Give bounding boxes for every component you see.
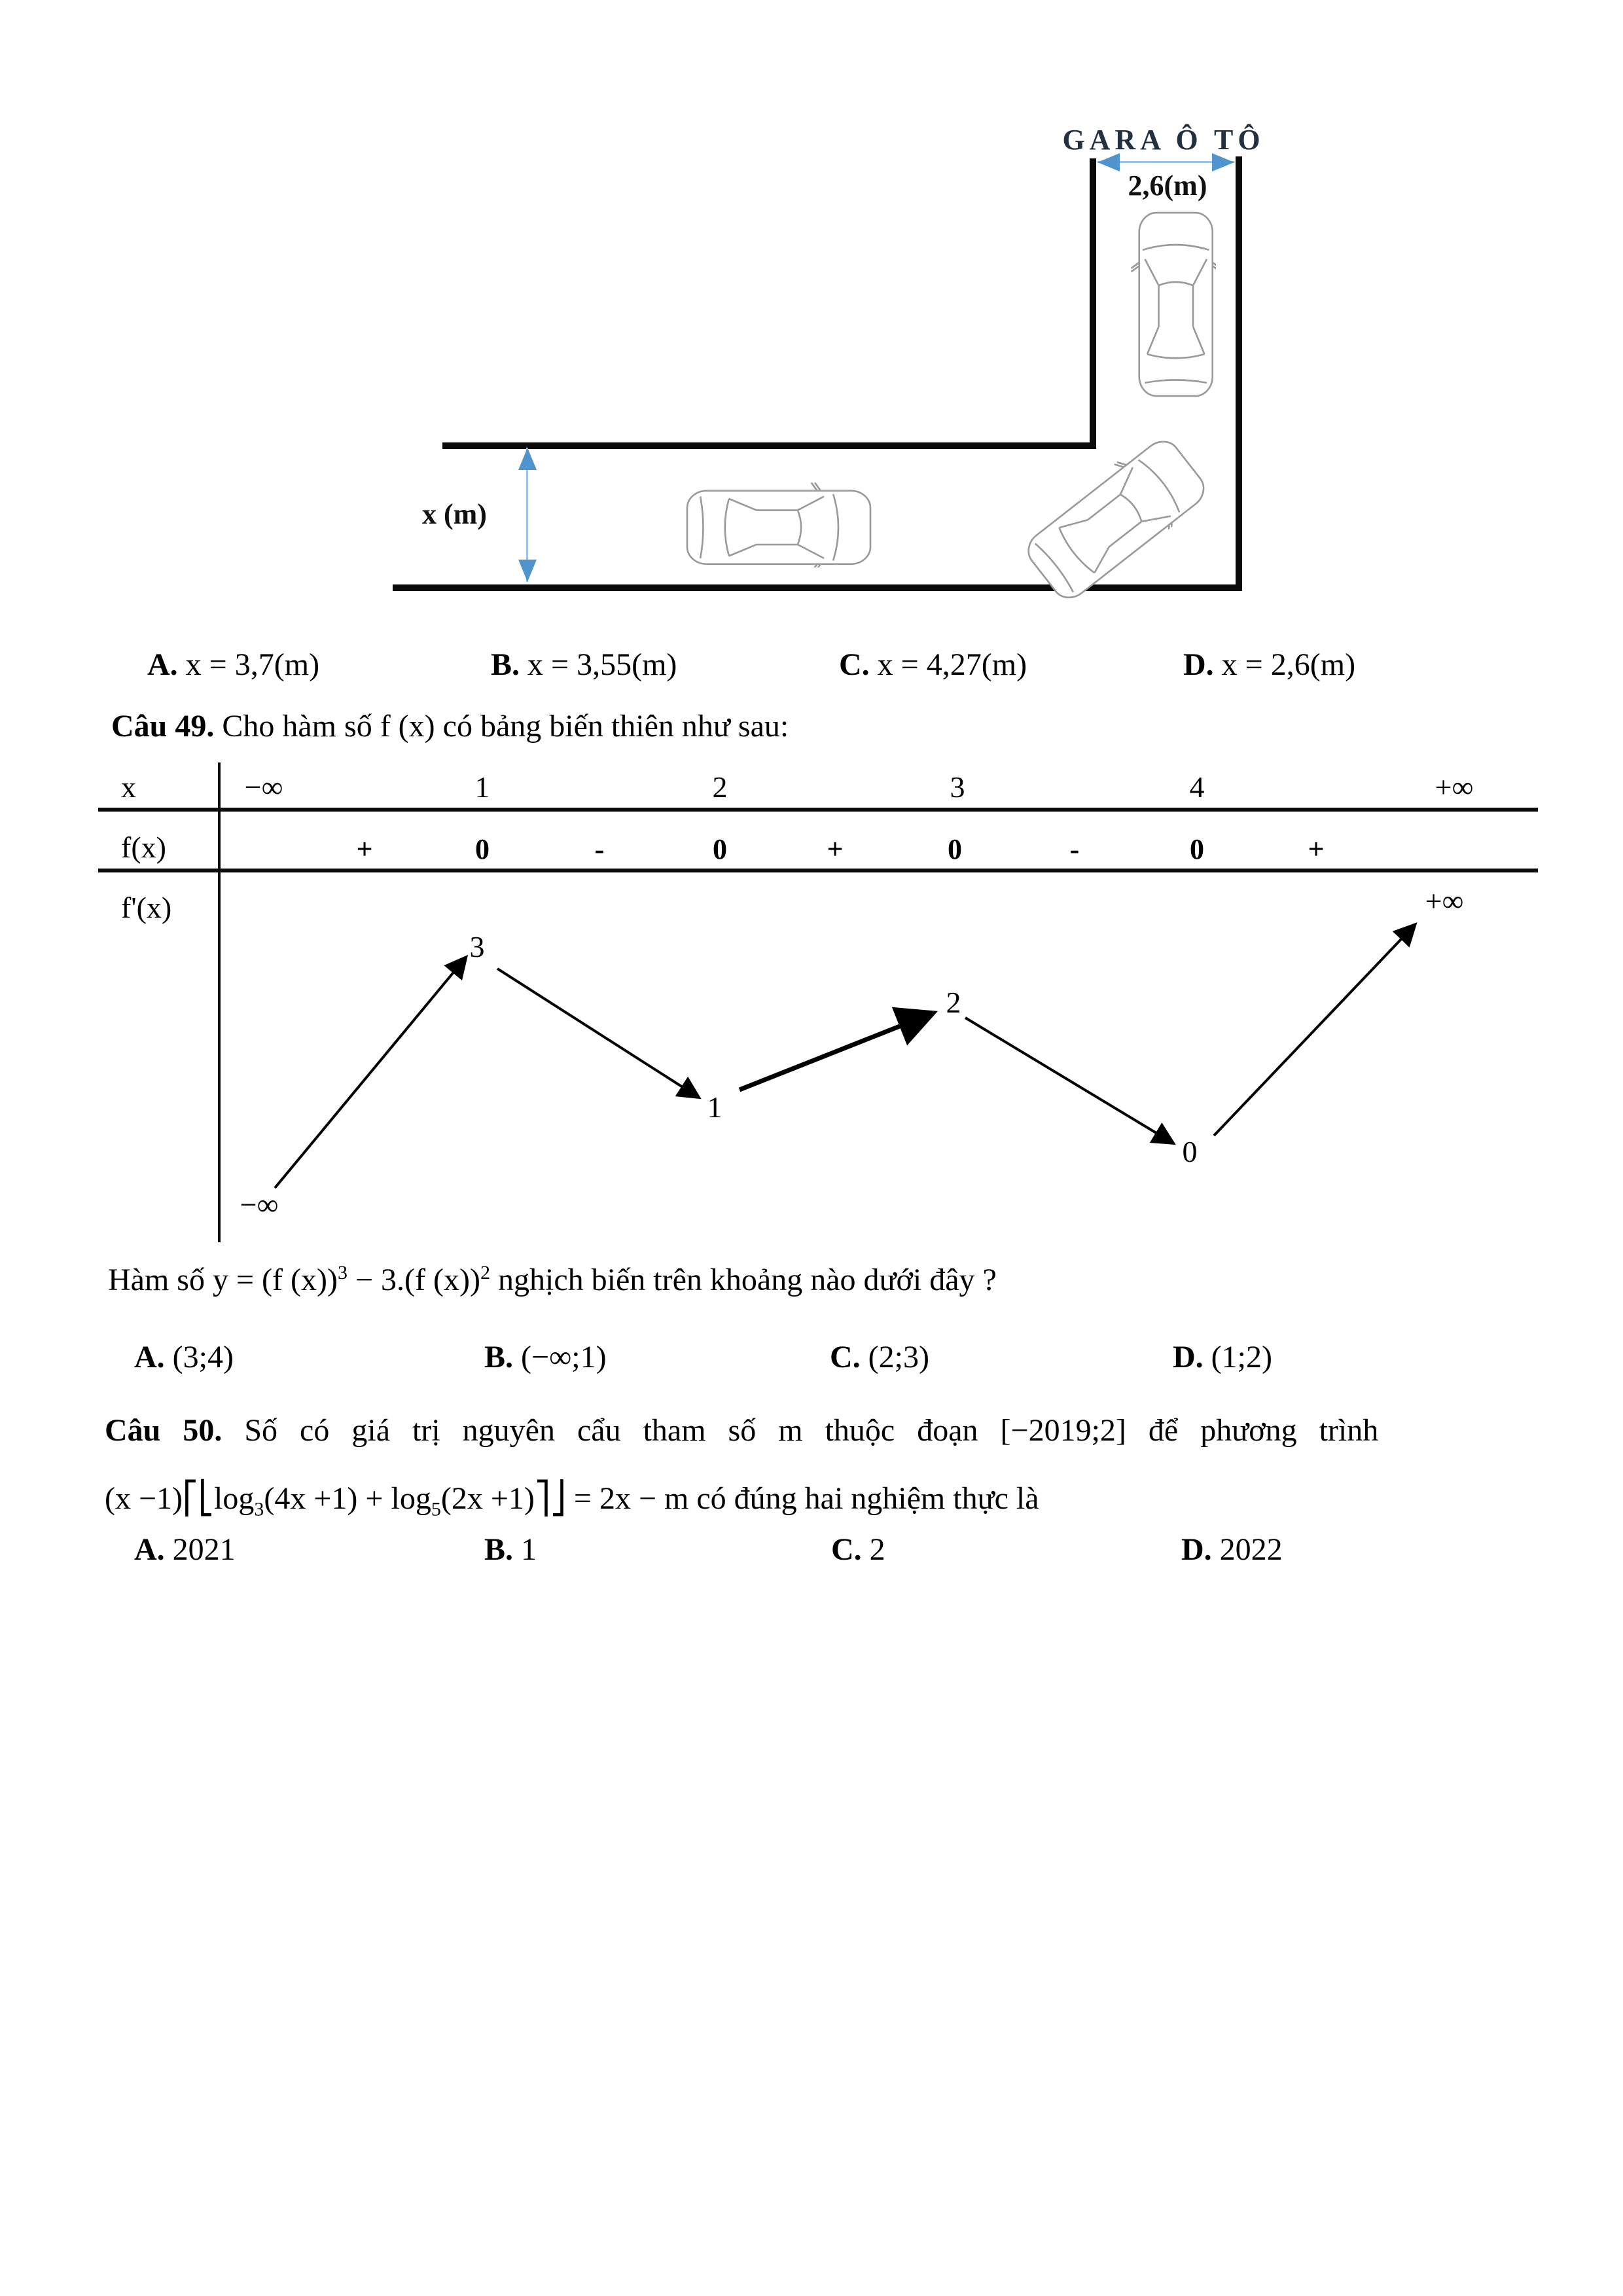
exponent-3: 3: [338, 1262, 348, 1283]
q50-number: Câu 50.: [105, 1413, 222, 1448]
row-label-fx: f(x): [121, 830, 166, 865]
q49-question-suffix: nghịch biến trên khoảng nào dưới đây ?: [490, 1263, 997, 1297]
log-base-3: 3: [254, 1499, 264, 1520]
option-letter: B.: [484, 1340, 513, 1374]
option-text: 1: [521, 1532, 537, 1567]
x-value: 4: [1190, 770, 1205, 804]
car-in-garage-icon: [1124, 200, 1216, 409]
option-letter: A.: [134, 1532, 165, 1567]
curve-value-valley1: 1: [707, 1090, 722, 1124]
q50-option-c[interactable]: C. 2: [831, 1532, 885, 1568]
x-value: 2: [713, 770, 728, 804]
option-text: 2021: [173, 1532, 236, 1567]
garage-title: GARA Ô TÔ: [1062, 123, 1264, 156]
option-text: x = 2,6(m): [1222, 647, 1355, 682]
option-text: 2: [870, 1532, 885, 1567]
option-letter: C.: [831, 1532, 862, 1567]
option-letter: B.: [491, 647, 520, 682]
x-value: 3: [950, 770, 965, 804]
corridor-inner-wall: [442, 442, 1096, 449]
arrowhead-down-icon: [518, 560, 537, 582]
sign-value: 0: [475, 833, 490, 866]
sign-value: -: [595, 833, 605, 866]
option-text: (3;4): [173, 1340, 234, 1374]
sign-value: 0: [948, 833, 962, 866]
arrowhead-right-icon: [1212, 153, 1234, 171]
q49-option-d[interactable]: D. (1;2): [1173, 1339, 1272, 1375]
x-value: 1: [475, 770, 490, 804]
sign-value: +: [827, 833, 843, 866]
garage-width-label: 2,6(m): [1128, 169, 1207, 202]
option-letter: D.: [1181, 1532, 1212, 1567]
q48-option-c[interactable]: C. x = 4,27(m): [839, 647, 1027, 683]
corridor-width-dimension: [526, 448, 528, 582]
variation-arrows: [196, 884, 1538, 1244]
q49-number: Câu 49.: [111, 709, 214, 744]
q49-option-c[interactable]: C. (2;3): [830, 1339, 929, 1375]
q48-option-a[interactable]: A. x = 3,7(m): [147, 647, 319, 683]
option-text: x = 4,27(m): [878, 647, 1027, 682]
option-text: x = 3,7(m): [186, 647, 319, 682]
q50-header: Câu 50. Số có giá trị nguyên cẩu tham số…: [105, 1412, 1535, 1448]
option-letter: A.: [147, 647, 178, 682]
option-letter: D.: [1173, 1340, 1204, 1374]
curve-value-start: −∞: [240, 1187, 279, 1222]
q49-question-prefix: Hàm số: [108, 1263, 213, 1297]
table-rule-1: [98, 808, 1538, 812]
curve-value-peak2: 2: [946, 985, 961, 1020]
q50-eq-part2: (4x +1) + log: [264, 1481, 431, 1516]
q50-eq-tail: có đúng hai nghiệm thực là: [688, 1481, 1039, 1516]
q50-eq-part3: (2x +1)⎤⎦ = 2x − m: [441, 1481, 689, 1516]
option-text: (1;2): [1211, 1340, 1272, 1374]
option-letter: A.: [134, 1340, 165, 1374]
sign-value: +: [356, 833, 372, 866]
q48-option-d[interactable]: D. x = 2,6(m): [1183, 647, 1355, 683]
option-text: (2;3): [868, 1340, 929, 1374]
q50-option-d[interactable]: D. 2022: [1181, 1532, 1283, 1568]
q49-header: Câu 49. Cho hàm số f (x) có bảng biến th…: [111, 708, 789, 744]
x-value: +∞: [1435, 770, 1474, 804]
q49-formula-part1: y = (f (x)): [213, 1263, 338, 1297]
garage-right-wall: [1236, 156, 1242, 591]
row-label-x: x: [121, 770, 136, 804]
sign-value: +: [1308, 833, 1324, 866]
option-text: 2022: [1220, 1532, 1283, 1567]
garage-width-dimension: [1097, 161, 1234, 163]
table-rule-2: [98, 869, 1538, 872]
option-letter: B.: [484, 1532, 513, 1567]
corridor-width-label: x (m): [422, 497, 487, 531]
sign-value: -: [1070, 833, 1080, 866]
option-text: x = 3,55(m): [527, 647, 677, 682]
corridor-bottom-wall: [393, 584, 1242, 591]
q50-text-1: Số có giá trị nguyên cẩu tham số m thuộc…: [244, 1413, 978, 1448]
q49-intro: Cho hàm số f (x) có bảng biến thiên như …: [214, 709, 789, 744]
car-in-corridor-icon: [671, 476, 887, 567]
option-letter: D.: [1183, 647, 1214, 682]
x-value: −∞: [245, 770, 283, 804]
q49-question: Hàm số y = (f (x))3 − 3.(f (x))2 nghịch …: [108, 1262, 997, 1298]
log-base-5: 5: [431, 1499, 441, 1520]
row-label-fpx: f'(x): [121, 890, 171, 925]
q48-option-b[interactable]: B. x = 3,55(m): [491, 647, 677, 683]
q49-option-b[interactable]: B. (−∞;1): [484, 1339, 607, 1375]
option-letter: C.: [839, 647, 870, 682]
q50-text-2: để phương trình: [1149, 1413, 1378, 1448]
q50-option-a[interactable]: A. 2021: [134, 1532, 236, 1568]
q50-interval: [−2019;2]: [1001, 1413, 1126, 1448]
exponent-2: 2: [480, 1262, 490, 1283]
arrowhead-left-icon: [1097, 153, 1120, 171]
exam-page: GARA Ô TÔ 2,6(m) x (m) A. x = 3,7(m) B. …: [0, 0, 1623, 2296]
q49-formula-part2: − 3.(f (x)): [348, 1263, 480, 1297]
curve-value-peak1: 3: [470, 929, 485, 964]
curve-value-end: +∞: [1425, 884, 1464, 918]
option-letter: C.: [830, 1340, 861, 1374]
option-text: (−∞;1): [521, 1340, 607, 1374]
garage-left-wall: [1090, 158, 1096, 449]
sign-value: 0: [713, 833, 727, 866]
q50-eq-part1: (x −1)⎡⎣log: [105, 1481, 254, 1516]
q50-equation: (x −1)⎡⎣log3(4x +1) + log5(2x +1)⎤⎦ = 2x…: [105, 1480, 1039, 1516]
q50-option-b[interactable]: B. 1: [484, 1532, 537, 1568]
arrowhead-up-icon: [518, 448, 537, 470]
sign-value: 0: [1190, 833, 1204, 866]
q49-option-a[interactable]: A. (3;4): [134, 1339, 234, 1375]
curve-value-valley2: 0: [1183, 1134, 1198, 1169]
